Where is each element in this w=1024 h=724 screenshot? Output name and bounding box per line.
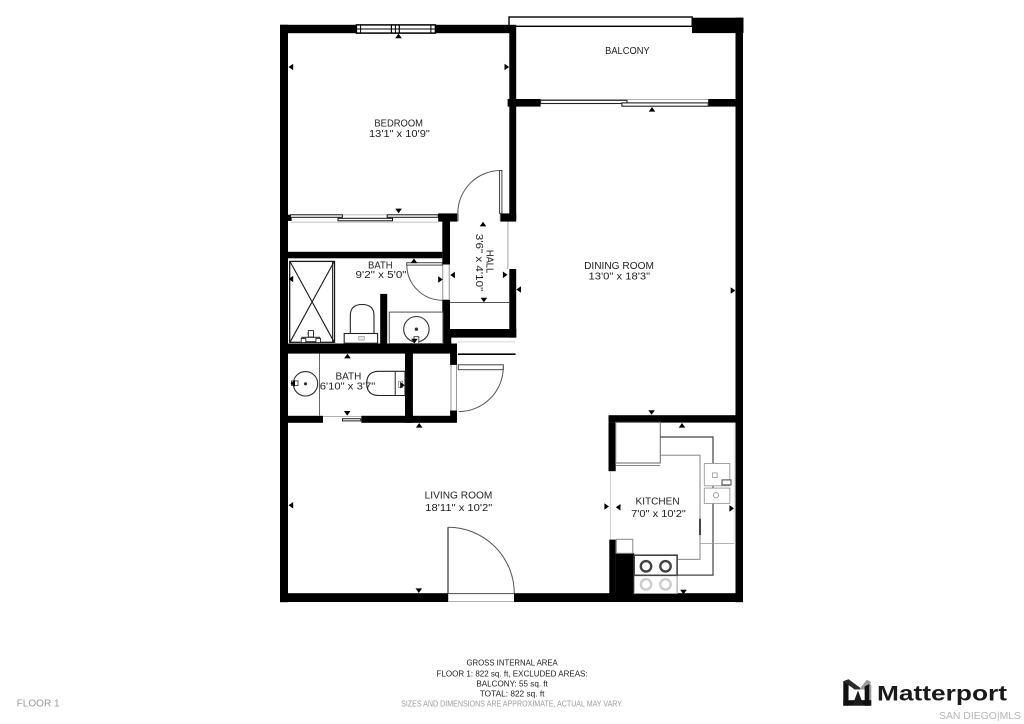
svg-text:BEDROOM: BEDROOM [374, 118, 423, 129]
svg-text:7'0" x 10'2": 7'0" x 10'2" [631, 509, 686, 520]
svg-text:13'0" x 18'3": 13'0" x 18'3" [589, 272, 651, 283]
svg-text:SAN DIEGO|MLS: SAN DIEGO|MLS [939, 710, 1021, 722]
svg-text:BALCONY: BALCONY [605, 46, 650, 57]
svg-text:BALCONY: 55 sq. ft: BALCONY: 55 sq. ft [476, 678, 548, 688]
svg-text:SIZES AND DIMENSIONS ARE APPRO: SIZES AND DIMENSIONS ARE APPROXIMATE, AC… [401, 699, 623, 708]
svg-text:6'10" x 3'7": 6'10" x 3'7" [320, 381, 376, 392]
svg-text:GROSS INTERNAL AREA: GROSS INTERNAL AREA [466, 658, 558, 668]
svg-text:9'2" x 5'0": 9'2" x 5'0" [356, 270, 407, 281]
svg-text:18'11" x 10'2": 18'11" x 10'2" [425, 503, 492, 514]
svg-text:HALL: HALL [484, 250, 495, 274]
svg-text:FLOOR 1: 822 sq. ft, EXCLUDED: FLOOR 1: 822 sq. ft, EXCLUDED AREAS: [437, 668, 588, 678]
svg-text:Matterport: Matterport [877, 681, 1007, 705]
svg-text:3'6" x 4'10": 3'6" x 4'10" [473, 234, 484, 292]
svg-text:KITCHEN: KITCHEN [636, 497, 680, 508]
svg-text:DINING ROOM: DINING ROOM [584, 261, 654, 272]
svg-text:TOTAL: 822 sq. ft: TOTAL: 822 sq. ft [480, 688, 545, 698]
svg-text:13'1" x 10'9": 13'1" x 10'9" [369, 129, 430, 140]
svg-text:LIVING ROOM: LIVING ROOM [425, 490, 493, 501]
svg-text:FLOOR 1: FLOOR 1 [17, 697, 60, 709]
